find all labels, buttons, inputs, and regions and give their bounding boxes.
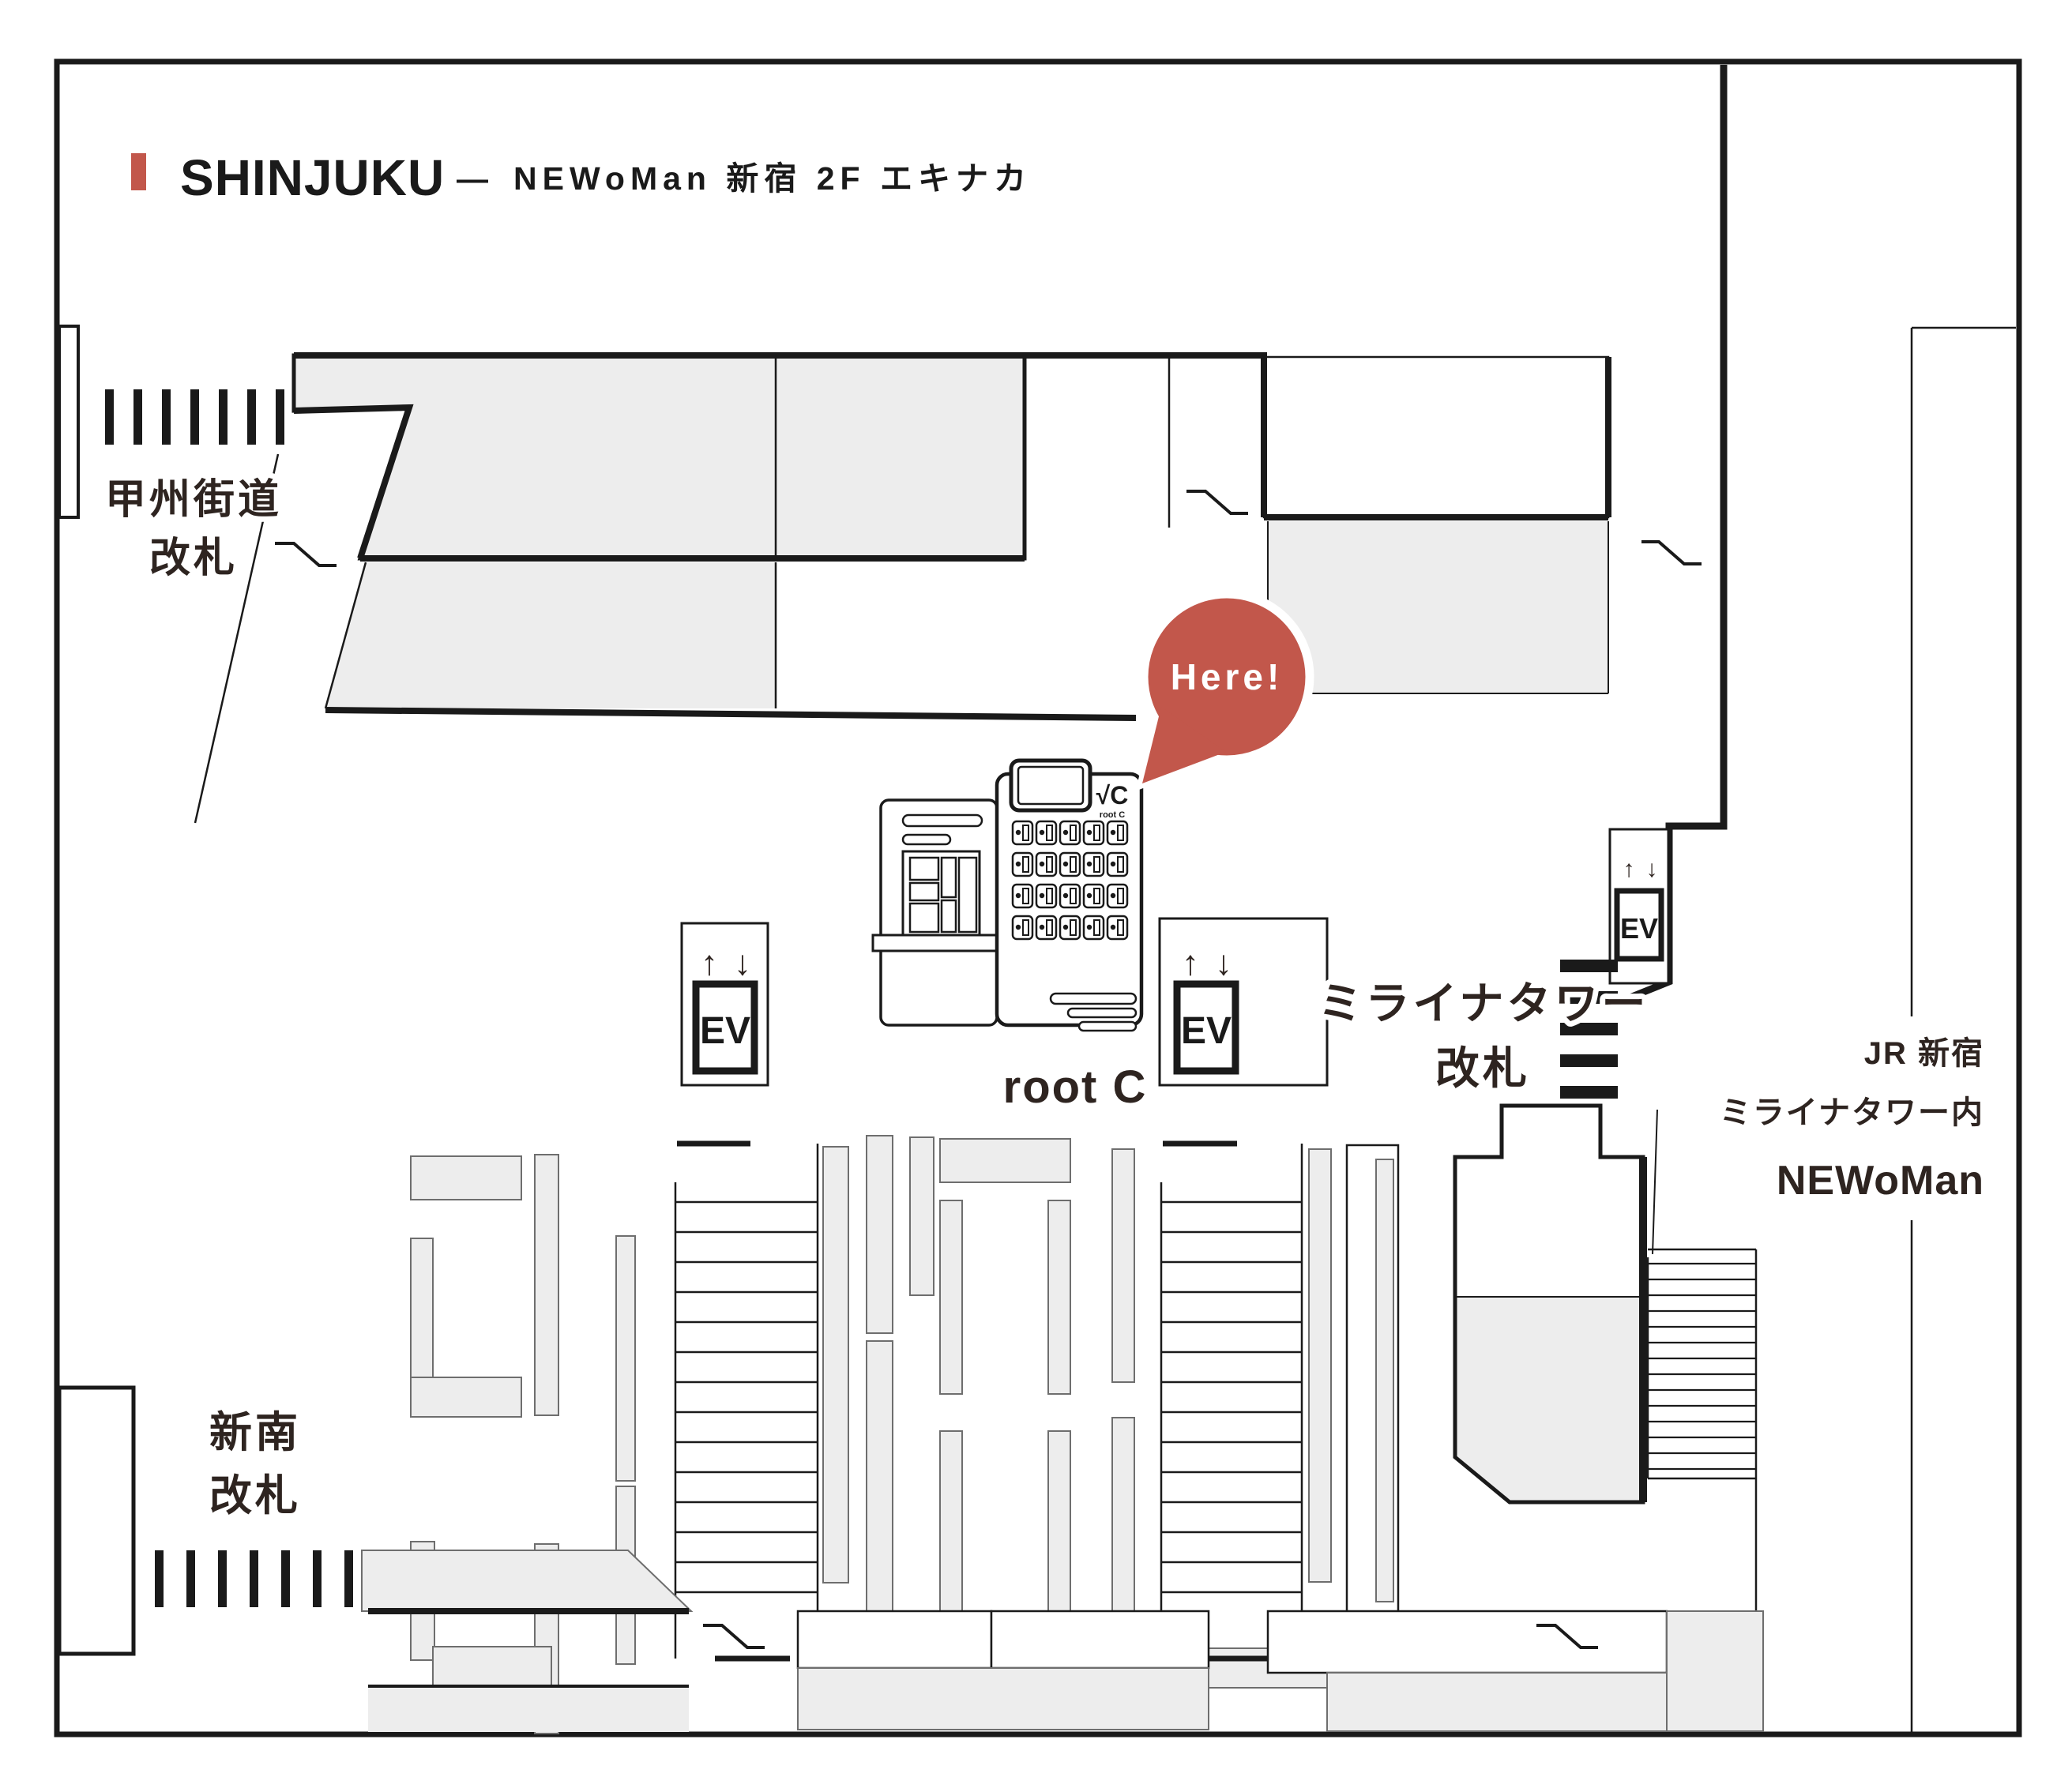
up-arrow-icon: ↑: [1182, 944, 1199, 982]
elevator-2: ↑ ↓ EV: [1160, 919, 1327, 1085]
jr-corridor: JR 新宿 ミライナタワー内 NEWoMan: [1720, 328, 2016, 1732]
label-koshu-line1: 甲州街道: [105, 477, 282, 523]
station-map-shinjuku: SHINJUKU — NEWoMan 新宿 2F エキナカ: [0, 0, 2072, 1792]
down-arrow-icon: ↓: [734, 944, 751, 982]
up-arrow-icon: ↑: [701, 944, 718, 982]
label-newoman: NEWoMan: [1777, 1158, 1984, 1204]
up-arrow-icon: ↑: [1623, 856, 1635, 882]
here-label: Here!: [1171, 656, 1284, 697]
platform-end-block: [1347, 1145, 1398, 1662]
here-marker: Here!: [1142, 594, 1310, 783]
stair-symbol-1: [275, 543, 337, 565]
label-miraina-line2: 改札: [1435, 1043, 1530, 1093]
label-miraina-line1: ミライナタワー: [1318, 979, 1649, 1028]
gate-shin-minami: 新南 改札: [59, 1388, 353, 1654]
stairs-block-1: [675, 1144, 818, 1659]
title-subtitle: NEWoMan 新宿 2F エキナカ: [513, 160, 1032, 197]
elevator-2-label: EV: [1181, 1010, 1232, 1052]
kiosk-sign-line1: [903, 815, 982, 826]
label-koshu-line2: 改札: [149, 535, 238, 581]
locker-logo-caption: root C: [1100, 810, 1125, 820]
label-shinminami-line2: 改札: [209, 1472, 301, 1520]
down-arrow-icon: ↓: [1215, 944, 1232, 982]
stair-symbol-2: [1186, 491, 1248, 513]
stair-symbol-3: [1641, 542, 1702, 564]
row2-left-gray-area: [325, 562, 776, 708]
title-main: SHINJUKU: [180, 149, 445, 206]
queue-line: [1653, 1110, 1657, 1254]
locker-logo: √C: [1096, 781, 1129, 810]
gate-shinminami-hatch: [155, 1550, 353, 1607]
kiosk-sign-line2: [903, 835, 950, 844]
title-accent-bar: [131, 153, 146, 190]
row2-bottom-wall: [325, 710, 1136, 718]
top-middle-block: [1264, 357, 1608, 517]
title-separator: —: [457, 162, 494, 197]
gate-koshu-hatch: [105, 389, 284, 445]
gate-koshu-structure: [59, 326, 78, 517]
floor-plan-svg: SHINJUKU — NEWoMan 新宿 2F エキナカ: [0, 0, 2072, 1792]
label-root-c: root C: [1003, 1061, 1148, 1113]
gate-shinminami-structure: [59, 1388, 133, 1654]
locker-screen-inner: [1018, 767, 1083, 804]
elevator-3: ↑ ↓ EV: [1610, 829, 1668, 983]
elevator-3-label: EV: [1620, 912, 1658, 945]
label-shinminami-line1: 新南: [209, 1409, 301, 1456]
stairs-block-2: [1161, 1144, 1302, 1659]
label-jr-shinjuku: JR 新宿: [1864, 1036, 1984, 1071]
kiosk-counter: [873, 935, 1005, 951]
page-title: SHINJUKU — NEWoMan 新宿 2F エキナカ: [131, 149, 1032, 206]
stair-symbol-4: [703, 1625, 765, 1647]
elevator-1-label: EV: [700, 1010, 750, 1052]
upper-left-platform-block: [294, 355, 1267, 558]
gate-miraina-tower: ミライナタワー 改札: [1318, 960, 1649, 1099]
label-miraina-inside: ミライナタワー内: [1720, 1095, 1984, 1130]
down-arrow-icon: ↓: [1646, 856, 1658, 882]
root-c-kiosk: √C root C: [873, 761, 1141, 1031]
row2-right-gray-area: [1268, 521, 1608, 693]
miraina-tower-footprint: [1455, 1106, 1657, 1502]
elevator-1: ↑ ↓ EV: [682, 923, 768, 1085]
